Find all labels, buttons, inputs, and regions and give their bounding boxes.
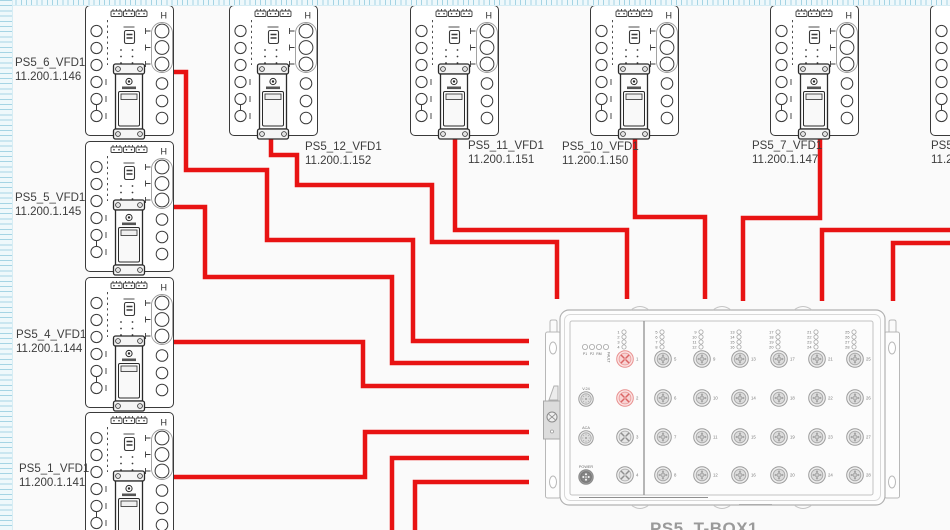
led-indicator bbox=[776, 345, 780, 349]
port-number: 18 bbox=[790, 396, 795, 401]
led-indicator bbox=[814, 345, 818, 349]
port-number: 14 bbox=[751, 396, 756, 401]
cable-PS5_7[interactable] bbox=[743, 139, 820, 301]
led-indicator bbox=[852, 340, 856, 344]
led-indicator bbox=[660, 340, 664, 344]
port-number: 15 bbox=[751, 435, 756, 440]
diagram-scene: H bbox=[0, 0, 950, 530]
device-PS5_6_VFD1[interactable] bbox=[86, 6, 174, 140]
device-PS5_1_VFD1[interactable] bbox=[86, 413, 174, 530]
status-led-label: RM bbox=[596, 352, 602, 356]
device-PS5_11_VFD1[interactable] bbox=[411, 6, 499, 140]
led-indicator bbox=[699, 345, 703, 349]
led-number: 8 bbox=[655, 345, 657, 350]
switch-mount-clip-right bbox=[889, 320, 896, 332]
port-number: 16 bbox=[751, 473, 756, 478]
mount-hole bbox=[889, 476, 896, 488]
ruler-vertical bbox=[0, 0, 13, 530]
led-indicator bbox=[776, 340, 780, 344]
led-indicator bbox=[852, 345, 856, 349]
cable-bottom-1[interactable] bbox=[392, 458, 529, 530]
status-led-P2 bbox=[589, 344, 594, 349]
device-PS5_12_VFD1[interactable] bbox=[230, 6, 318, 140]
led-indicator bbox=[852, 335, 856, 339]
led-number: 16 bbox=[730, 345, 734, 350]
led-indicator bbox=[814, 330, 818, 334]
port-number: 24 bbox=[828, 473, 833, 478]
port-number: 20 bbox=[790, 473, 795, 478]
port-number: 25 bbox=[866, 357, 871, 362]
cable-PS5_1[interactable] bbox=[173, 432, 529, 477]
port-number: 10 bbox=[713, 396, 718, 401]
mount-hole bbox=[550, 476, 557, 488]
cable-right-1[interactable] bbox=[822, 230, 950, 301]
device-PS5_10_VFD1[interactable] bbox=[591, 6, 679, 140]
led-number: 12 bbox=[692, 345, 696, 350]
led-indicator bbox=[776, 335, 780, 339]
port-number: 27 bbox=[866, 435, 871, 440]
device-PS5_8_VFD1[interactable] bbox=[931, 6, 950, 140]
led-indicator bbox=[737, 340, 741, 344]
led-number: 28 bbox=[845, 345, 849, 350]
cable-PS5_10[interactable] bbox=[635, 139, 705, 299]
led-indicator bbox=[699, 340, 703, 344]
led-indicator bbox=[660, 345, 664, 349]
led-indicator bbox=[737, 330, 741, 334]
led-indicator bbox=[776, 330, 780, 334]
led-indicator bbox=[699, 335, 703, 339]
connector-label: ACA bbox=[582, 426, 590, 430]
led-indicator bbox=[699, 330, 703, 334]
led-indicator bbox=[622, 335, 626, 339]
port-number: 13 bbox=[751, 357, 756, 362]
led-indicator bbox=[814, 340, 818, 344]
switch-mount-clip-left bbox=[550, 320, 557, 332]
switch-bracket-right bbox=[885, 332, 900, 498]
switch-connector-POWER[interactable]: POWER bbox=[579, 465, 594, 484]
mount-hole bbox=[550, 342, 557, 354]
port-number: 22 bbox=[828, 396, 833, 401]
status-led-RM bbox=[596, 344, 601, 349]
switch-ground-lug bbox=[544, 401, 561, 439]
led-indicator bbox=[660, 335, 664, 339]
led-indicator bbox=[622, 330, 626, 334]
diagram-canvas: H bbox=[0, 0, 950, 530]
status-led-label: P2 bbox=[590, 352, 594, 356]
status-led-P1 bbox=[582, 344, 587, 349]
device-PS5_7_VFD1[interactable] bbox=[771, 6, 859, 140]
port-number: 28 bbox=[866, 473, 871, 478]
led-indicator bbox=[737, 345, 741, 349]
port-number: 26 bbox=[866, 396, 871, 401]
cable-PS5_11[interactable] bbox=[455, 139, 627, 299]
cable-right-2[interactable] bbox=[893, 243, 950, 301]
switch-faceplate bbox=[570, 321, 873, 495]
led-indicator bbox=[660, 330, 664, 334]
led-indicator bbox=[737, 335, 741, 339]
port-number: 19 bbox=[790, 435, 795, 440]
ruler-horizontal bbox=[0, 0, 950, 6]
port-number: 21 bbox=[828, 357, 833, 362]
connector-label: POWER bbox=[579, 465, 594, 469]
cable-bottom-2[interactable] bbox=[415, 482, 529, 530]
connector-label: V.24 bbox=[582, 387, 589, 391]
port-number: 23 bbox=[828, 435, 833, 440]
status-led-FAULT bbox=[603, 344, 608, 349]
led-indicator bbox=[622, 340, 626, 344]
status-led-label: FAULT bbox=[607, 352, 611, 363]
device-PS5_4_VFD1[interactable] bbox=[86, 278, 174, 412]
switch-device[interactable]: P1P2RMFAULT 1234567891011121314151617181… bbox=[544, 307, 900, 509]
mount-hole bbox=[889, 342, 896, 354]
port-number: 12 bbox=[713, 473, 718, 478]
led-indicator bbox=[852, 330, 856, 334]
led-indicator bbox=[814, 335, 818, 339]
led-indicator bbox=[622, 345, 626, 349]
device-PS5_5_VFD1[interactable] bbox=[86, 142, 174, 276]
status-led-label: P1 bbox=[583, 352, 587, 356]
port-number: 17 bbox=[790, 357, 795, 362]
port-number: 11 bbox=[713, 435, 718, 440]
